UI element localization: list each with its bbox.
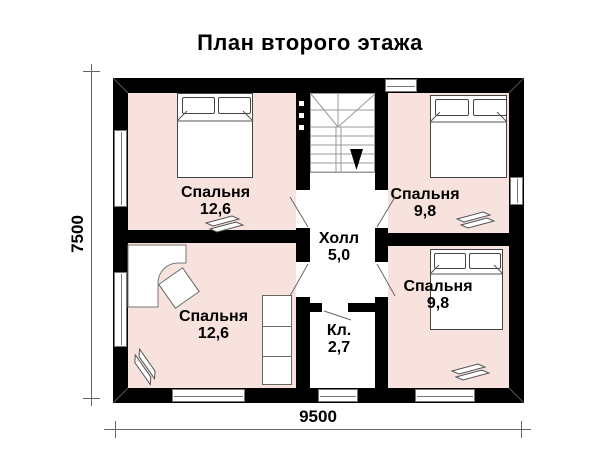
window-top — [385, 79, 417, 92]
window-bottom-center — [318, 389, 358, 402]
door-opening-bedroom-top-left — [296, 190, 310, 228]
room-area: 5,0 — [301, 247, 377, 264]
wall-detail-square — [299, 101, 304, 106]
dimension-label-height: 7500 — [68, 194, 88, 274]
window-left-upper — [114, 130, 127, 207]
door-opening-closet — [322, 303, 348, 312]
room-name: Кл. — [301, 322, 377, 339]
room-area: 2,7 — [301, 339, 377, 356]
room-name: Спальня — [365, 186, 485, 203]
pillow-icon — [434, 253, 466, 269]
door-opening-bedroom-bottom-left — [296, 262, 310, 297]
window-left-lower — [114, 272, 127, 347]
wall-detail-square — [299, 113, 304, 118]
room-area: 9,8 — [365, 203, 485, 220]
window-bottom-left — [172, 389, 245, 402]
dimension-line-horizontal — [104, 429, 531, 430]
dimension-line-vertical — [91, 64, 92, 406]
wall-detail-square — [299, 125, 304, 130]
room-name: Холл — [301, 230, 377, 247]
room-name: Спальня — [146, 308, 281, 325]
double-bed-top-left — [177, 93, 253, 178]
dimension-tick — [83, 398, 100, 399]
page-title: План второго этажа — [0, 30, 600, 56]
room-name: Спальня — [378, 278, 498, 295]
pillow-icon — [182, 97, 215, 114]
pillow-icon — [473, 99, 507, 116]
dimension-tick — [83, 71, 100, 72]
pillow-icon — [218, 97, 251, 114]
room-label-closet: Кл. 2,7 — [301, 322, 377, 356]
room-label-bedroom-bottom-right: Спальня 9,8 — [378, 278, 498, 312]
double-bed-top-right — [430, 95, 507, 178]
room-label-bedroom-bottom-left: Спальня 12,6 — [146, 308, 281, 342]
room-label-bedroom-top-left: Спальня 12,6 — [148, 184, 283, 218]
floor-plan-page: План второго этажа С — [0, 0, 600, 471]
room-label-hall: Холл 5,0 — [301, 230, 377, 264]
window-bottom-right — [415, 389, 475, 402]
window-right — [510, 177, 523, 205]
pillow-icon — [435, 99, 469, 116]
room-area: 9,8 — [378, 295, 498, 312]
pillow-icon — [469, 253, 501, 269]
dimension-tick — [521, 421, 522, 438]
dimension-tick — [115, 421, 116, 438]
room-label-bedroom-top-right: Спальня 9,8 — [365, 186, 485, 220]
room-area: 12,6 — [148, 201, 283, 218]
room-name: Спальня — [148, 184, 283, 201]
dimension-label-width: 9500 — [258, 407, 378, 427]
room-area: 12,6 — [146, 325, 281, 342]
